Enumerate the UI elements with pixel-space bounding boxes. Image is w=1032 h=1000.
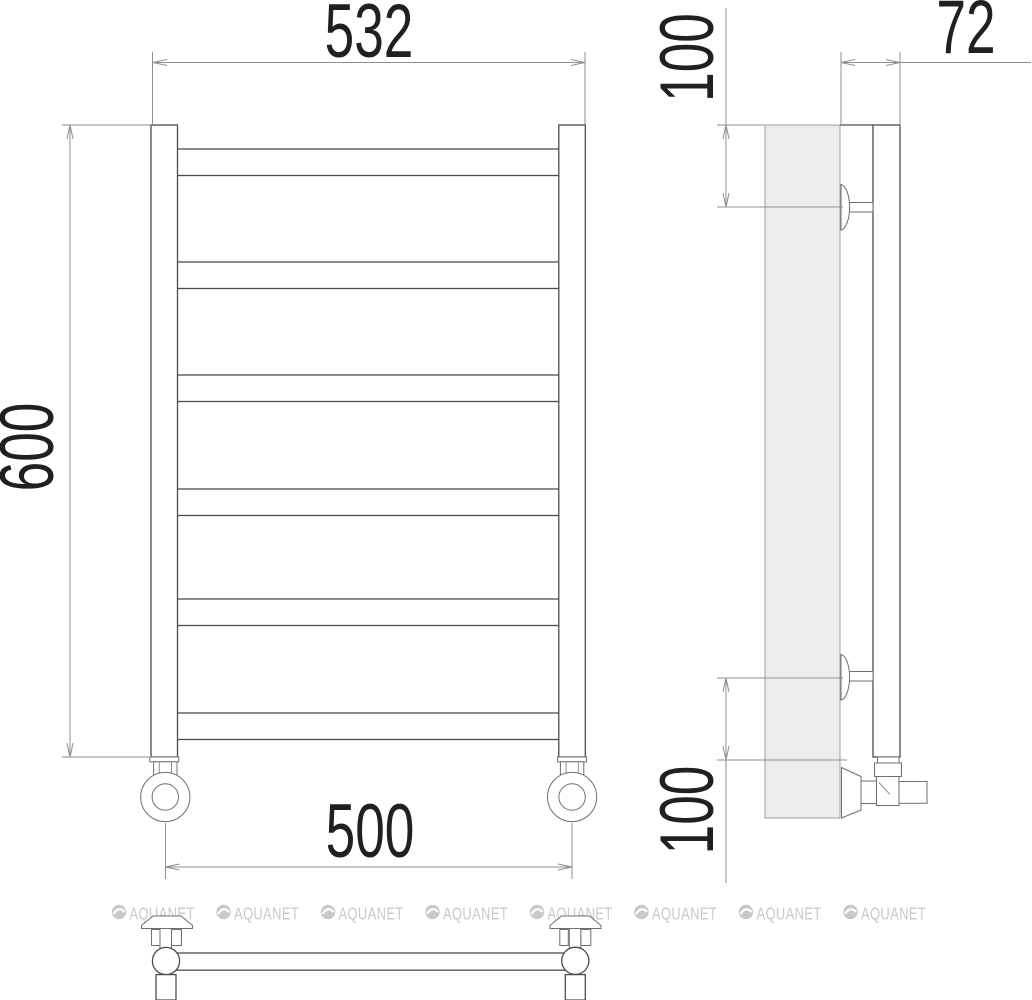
front-view (141, 125, 597, 822)
bracket-top (841, 185, 873, 231)
watermark: AQUANET (739, 905, 822, 924)
watermark-text: AQUANET (861, 905, 926, 924)
dimension-value: 500 (326, 789, 415, 874)
dimension-bottom-width: 500 (166, 789, 573, 879)
drawing-page: AQUANET AQUANET AQUANET AQUANET AQUANET … (0, 0, 1032, 1000)
bracket-stem (849, 672, 874, 682)
pipe-circle (152, 784, 178, 810)
watermark: AQUANET (634, 905, 717, 924)
watermark-text: AQUANET (757, 905, 822, 924)
dimension-value: 100 (645, 766, 730, 855)
bracket-nut (581, 930, 591, 946)
cross-tube (166, 953, 576, 970)
watermark-text: AQUANET (443, 905, 508, 924)
watermark: AQUANET (425, 905, 508, 924)
valve-nut-top (875, 763, 902, 777)
fitting-left (141, 757, 190, 822)
collar (558, 757, 587, 762)
dimension-value: 600 (0, 403, 69, 492)
bracket-nut (172, 930, 182, 946)
pipe-circle (559, 784, 585, 810)
collar (150, 757, 179, 762)
watermark-text: AQUANET (339, 905, 404, 924)
valve-body (877, 777, 900, 806)
post-section-circle (562, 947, 589, 974)
watermark-text: AQUANET (234, 905, 299, 924)
bracket-nut (560, 930, 569, 946)
dimension-value: 100 (645, 13, 730, 102)
valve-outlet (899, 782, 927, 804)
rung (177, 262, 560, 289)
fitting-right (548, 757, 597, 822)
side-view (765, 125, 927, 818)
post-right (559, 125, 586, 757)
dimension-height: 600 (0, 125, 151, 757)
watermark: AQUANET (321, 905, 404, 924)
watermark: AQUANET (843, 905, 926, 924)
dimension-depth: 72 (841, 0, 1031, 124)
rung (177, 489, 560, 516)
rung (177, 375, 560, 402)
watermark-text: AQUANET (652, 905, 717, 924)
dimension-top-width: 532 (153, 0, 586, 124)
post-section-circle (152, 947, 179, 974)
valve-flange (878, 757, 900, 763)
bracket-nut (152, 930, 161, 946)
wall-panel (765, 125, 840, 818)
bracket-stem (849, 203, 874, 213)
watermark-row: AQUANET AQUANET AQUANET AQUANET AQUANET … (112, 905, 926, 924)
rung (177, 713, 560, 740)
post-stub (156, 975, 176, 1000)
valve-assembly (842, 757, 928, 818)
technical-drawing: AQUANET AQUANET AQUANET AQUANET AQUANET … (0, 0, 1032, 1000)
post-stub (565, 975, 585, 1000)
dimension-value: 532 (325, 0, 414, 73)
rung (177, 599, 560, 626)
bracket-rosette (841, 655, 850, 701)
post-left (151, 125, 178, 757)
bracket-bottom (841, 655, 873, 701)
wall-rosette-cone (842, 768, 862, 819)
watermark: AQUANET (216, 905, 299, 924)
dimension-value: 72 (936, 0, 995, 69)
rung (177, 149, 560, 176)
rail-pipe-side (873, 125, 900, 757)
bottom-view (142, 916, 602, 1000)
